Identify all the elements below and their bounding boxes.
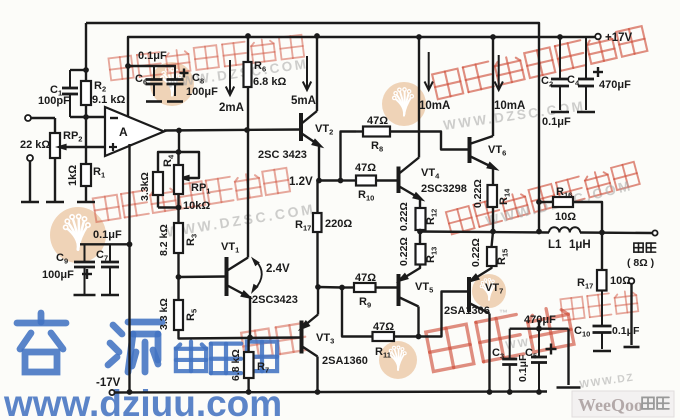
svg-text:-17V: -17V (96, 377, 121, 389)
svg-text:+17V: +17V (605, 32, 633, 44)
svg-text:3.3kΩ: 3.3kΩ (139, 172, 151, 201)
svg-text:0.22Ω: 0.22Ω (398, 202, 410, 231)
svg-text:1μH: 1μH (569, 239, 591, 251)
svg-text:2SC3298: 2SC3298 (421, 183, 467, 195)
svg-text:47Ω: 47Ω (355, 162, 376, 174)
svg-text:100pF: 100pF (38, 95, 70, 107)
svg-text:0.1μF: 0.1μF (542, 116, 571, 128)
svg-text:2SC3423: 2SC3423 (252, 294, 298, 306)
svg-text:0.22Ω: 0.22Ω (398, 237, 410, 266)
svg-text:10Ω: 10Ω (555, 211, 576, 223)
svg-text:8.2 kΩ: 8.2 kΩ (158, 224, 170, 256)
svg-text:100μF: 100μF (42, 269, 74, 281)
svg-text:10mA: 10mA (494, 100, 525, 112)
svg-text:6.8 kΩ: 6.8 kΩ (230, 349, 242, 381)
svg-text:220Ω: 220Ω (325, 218, 352, 230)
svg-text:0.1μF: 0.1μF (612, 325, 640, 337)
svg-text:10kΩ: 10kΩ (183, 200, 210, 212)
svg-text:www.dziuu.com: www.dziuu.com (3, 383, 282, 420)
svg-text:2mA: 2mA (219, 102, 244, 114)
svg-text:2.4V: 2.4V (266, 263, 290, 275)
svg-text:L1: L1 (548, 239, 562, 251)
svg-text:2SA1360: 2SA1360 (322, 355, 368, 367)
svg-text:2SA1306: 2SA1306 (444, 305, 490, 317)
svg-text:6.8 kΩ: 6.8 kΩ (253, 76, 286, 88)
svg-text:™: ™ (499, 308, 508, 318)
svg-text:470μF: 470μF (599, 79, 631, 91)
svg-text:47Ω: 47Ω (355, 272, 376, 284)
svg-text:0.1μF: 0.1μF (93, 229, 122, 241)
svg-text:470μF: 470μF (524, 314, 556, 326)
svg-text:0.22Ω: 0.22Ω (472, 179, 484, 208)
svg-text:47Ω: 47Ω (373, 321, 394, 333)
svg-text:5mA: 5mA (291, 95, 316, 107)
svg-text:2SC 3423: 2SC 3423 (258, 149, 307, 161)
svg-text:1.2V: 1.2V (289, 176, 313, 188)
svg-text:100μF: 100μF (186, 86, 218, 98)
svg-text:10mA: 10mA (419, 100, 450, 112)
svg-text:47Ω: 47Ω (367, 115, 388, 127)
svg-text:WeeQoo: WeeQoo (578, 395, 643, 415)
svg-text:( 8Ω ): ( 8Ω ) (627, 257, 654, 269)
svg-text:9.1 kΩ: 9.1 kΩ (92, 94, 125, 106)
svg-text:1kΩ: 1kΩ (67, 165, 79, 186)
svg-text:22 kΩ: 22 kΩ (20, 139, 50, 151)
svg-text:3.3 kΩ: 3.3 kΩ (158, 298, 170, 330)
svg-text:0.1μF: 0.1μF (138, 50, 167, 62)
svg-text:0.22Ω: 0.22Ω (470, 238, 482, 267)
svg-text:A: A (119, 125, 128, 139)
